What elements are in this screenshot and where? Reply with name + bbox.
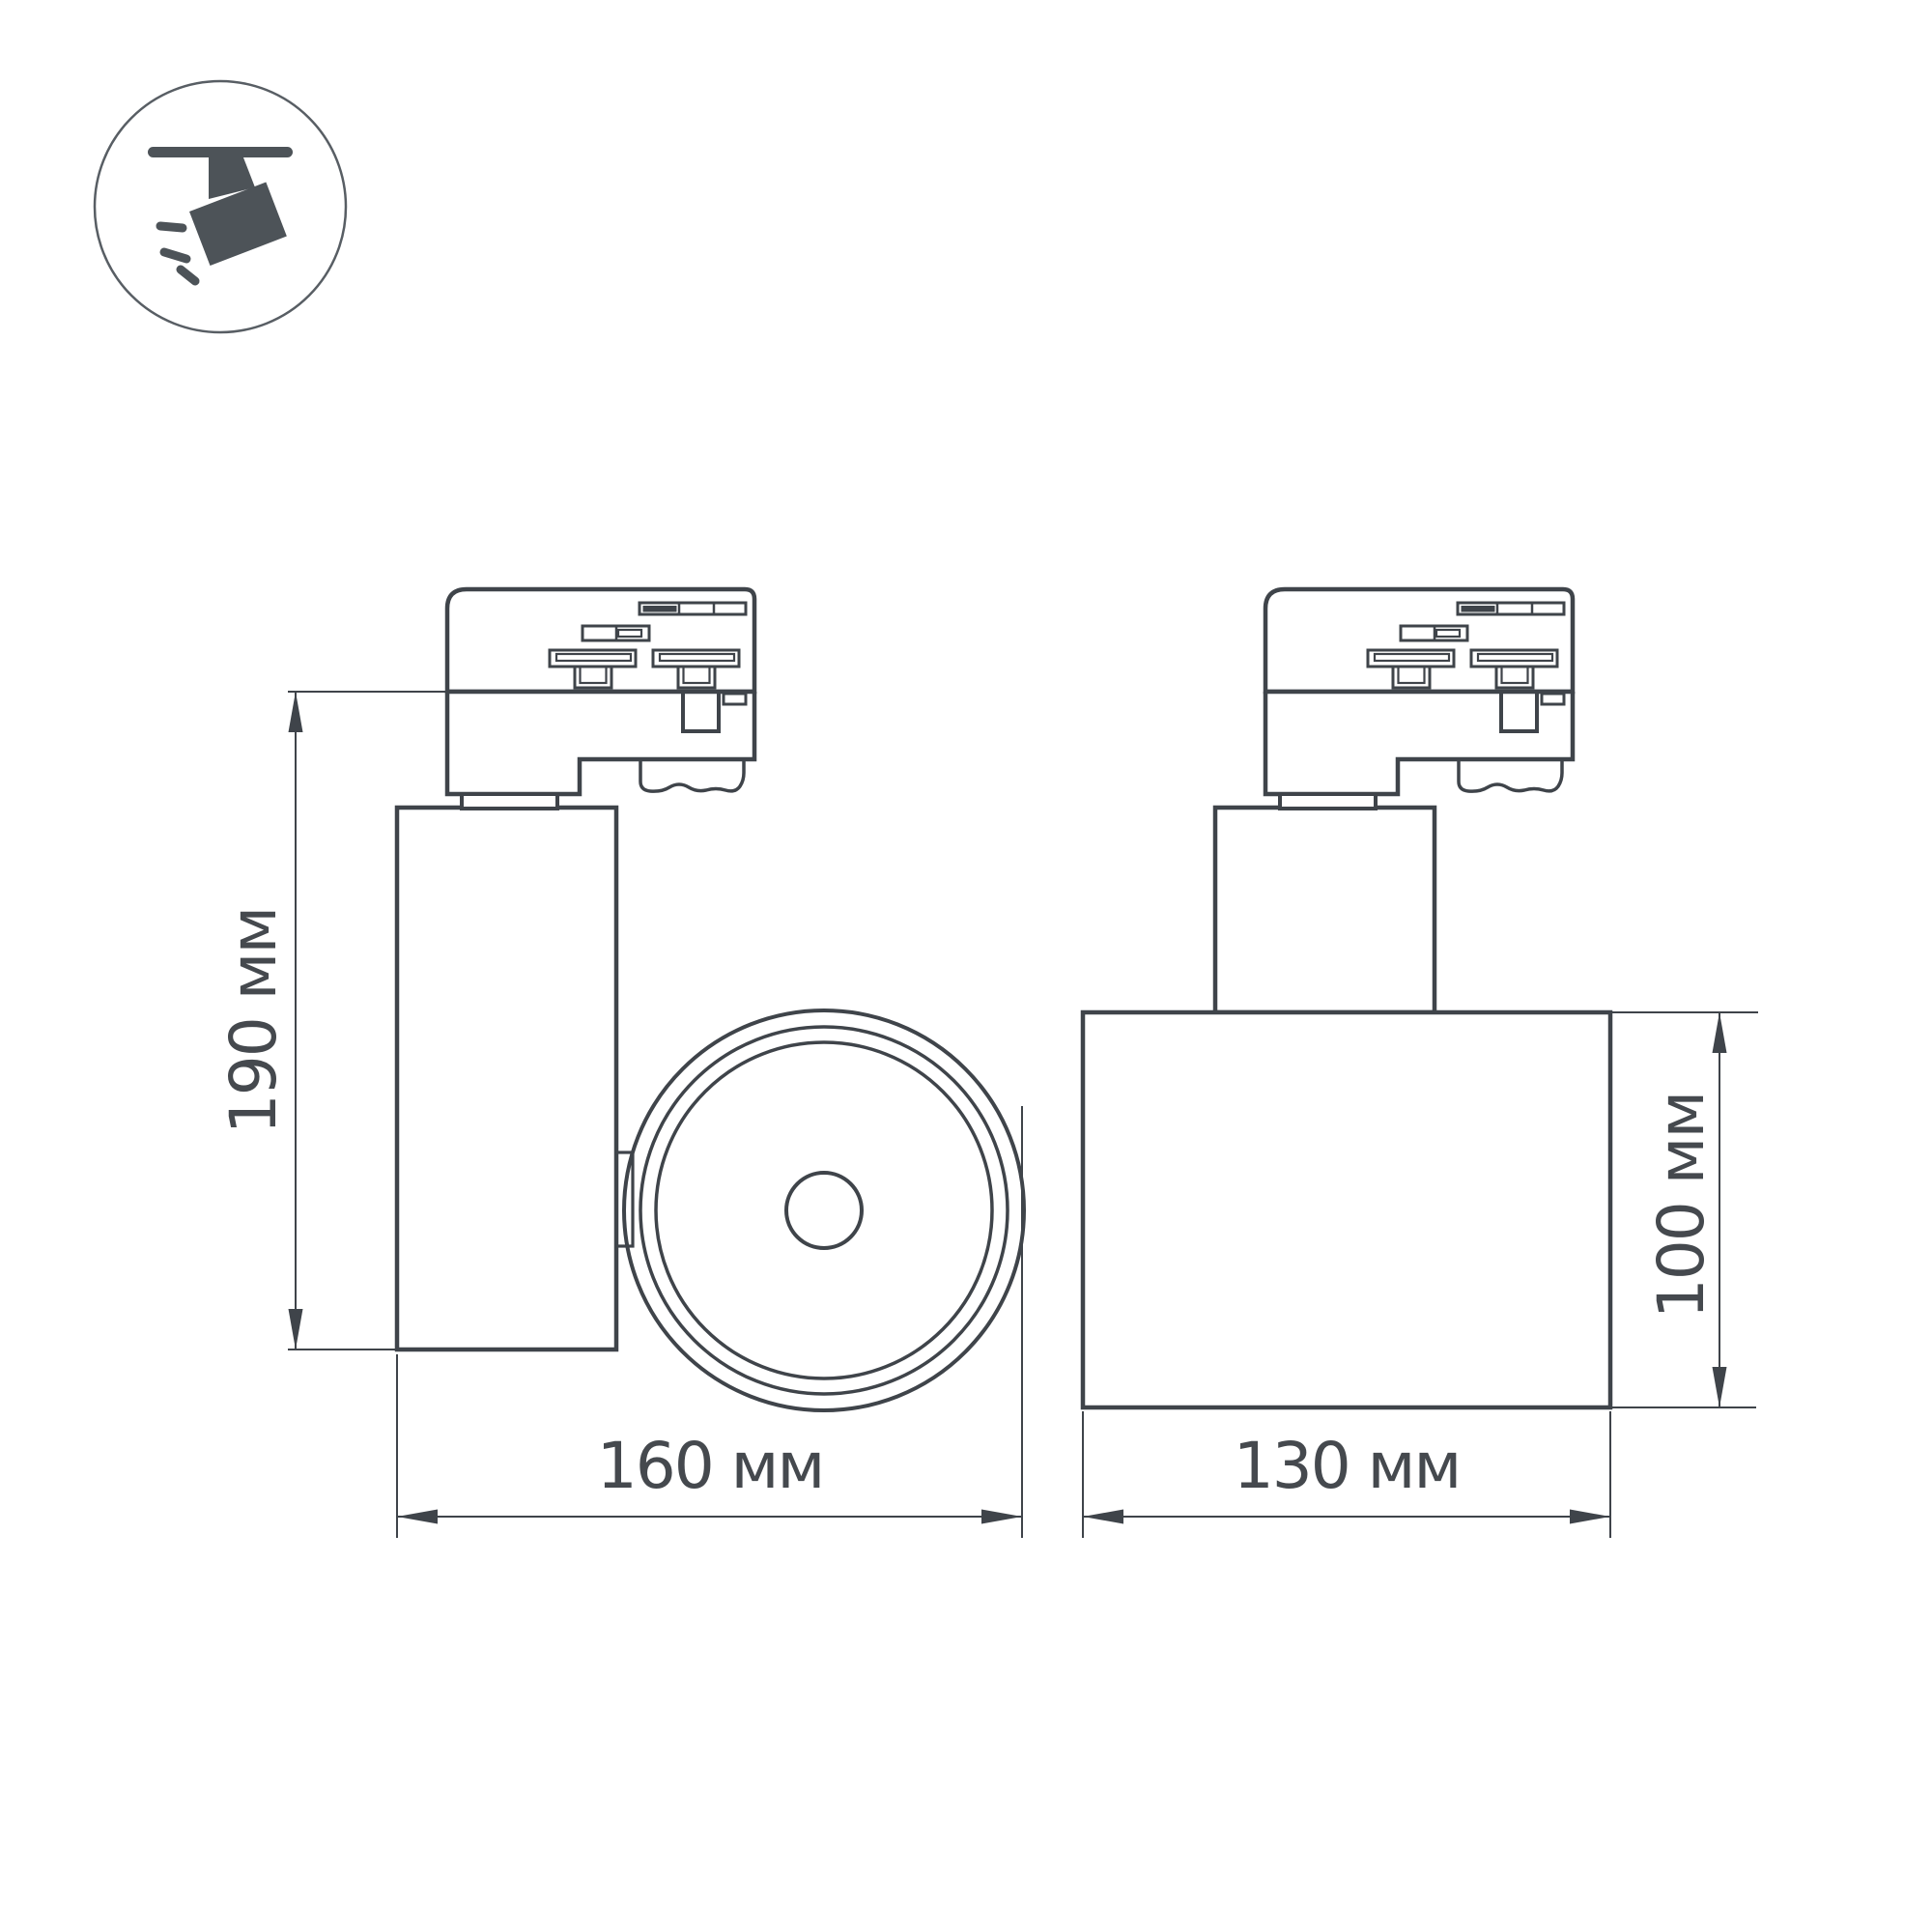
side-view-body: [397, 808, 616, 1350]
front-view-body: [1083, 1012, 1610, 1407]
dimension-label-depth: 160 мм: [597, 1429, 824, 1503]
front-view-track-adapter: [1265, 589, 1573, 809]
dimension-drawing: 190 мм 160 мм 130 мм 100 мм: [0, 0, 1932, 1932]
dimension-label-height: 190 мм: [216, 908, 291, 1135]
dimension-body-height: 100 мм: [1610, 1012, 1758, 1407]
side-view-track-adapter: [447, 589, 754, 809]
side-view-lens: [624, 1010, 1024, 1410]
icon-lamp-head: [189, 183, 287, 266]
side-view: [397, 589, 1024, 1410]
dimension-label-width: 130 мм: [1234, 1429, 1461, 1503]
dimension-width: 130 мм: [1083, 1411, 1610, 1538]
front-view: [1083, 589, 1610, 1407]
ceiling-track-spotlight-icon: [95, 81, 346, 332]
icon-light-rays: [160, 226, 195, 281]
dimension-label-body-height: 100 мм: [1644, 1093, 1719, 1320]
drawing-canvas: 190 мм 160 мм 130 мм 100 мм: [0, 0, 1932, 1932]
front-view-neck: [1215, 808, 1435, 1012]
